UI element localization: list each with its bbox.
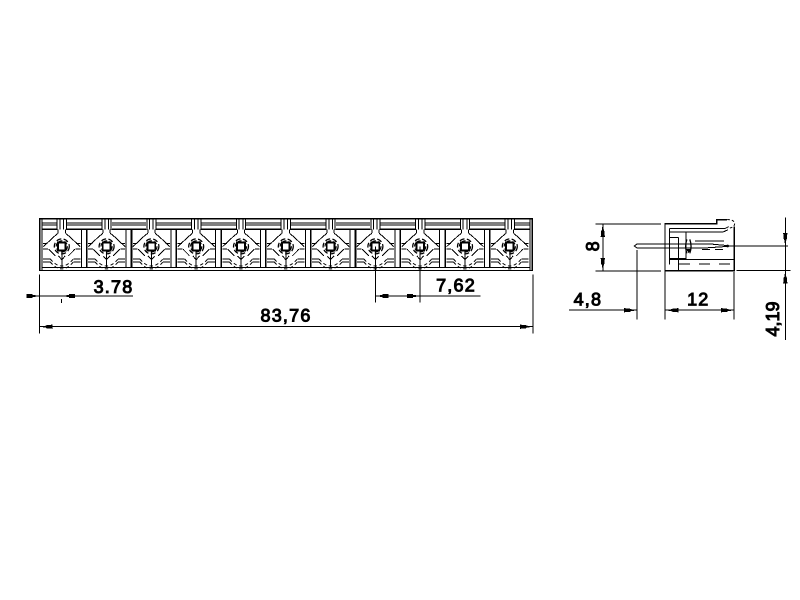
svg-text:3.78: 3.78	[94, 277, 134, 297]
svg-text:4,8: 4,8	[574, 289, 603, 309]
svg-text:4,19: 4,19	[763, 301, 783, 336]
svg-text:83,76: 83,76	[260, 305, 311, 325]
svg-text:12: 12	[687, 289, 709, 309]
svg-text:8: 8	[583, 241, 603, 251]
svg-text:7,62: 7,62	[436, 275, 476, 295]
